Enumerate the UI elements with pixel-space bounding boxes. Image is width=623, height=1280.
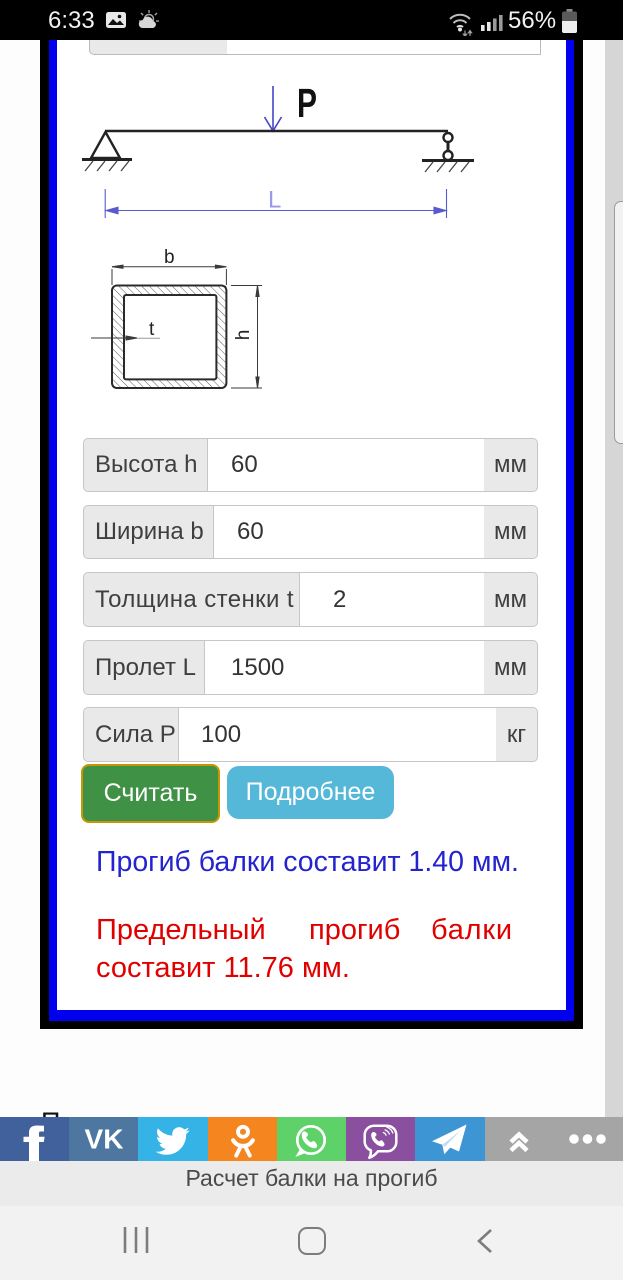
svg-text:L: L xyxy=(268,187,281,214)
svg-text:VK: VK xyxy=(85,1124,124,1155)
svg-text:b: b xyxy=(164,247,175,268)
svg-text:h: h xyxy=(233,330,254,341)
svg-text:t: t xyxy=(149,319,155,340)
svg-text:P: P xyxy=(297,80,317,126)
